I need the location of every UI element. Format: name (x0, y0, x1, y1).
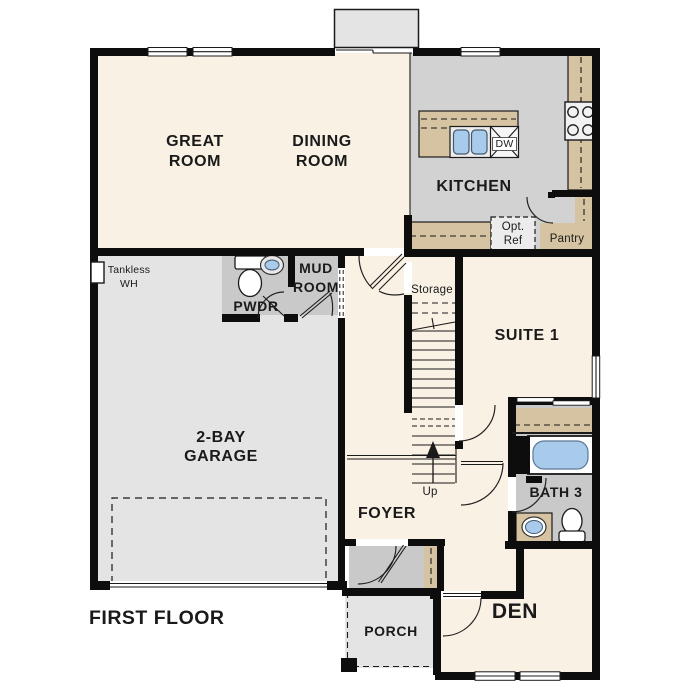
stove-icon (565, 102, 596, 140)
wall (90, 581, 110, 590)
floor-plan: GREAT ROOM DINING ROOM KITCHEN PWDR MUD … (0, 0, 687, 687)
door-hinge-post (548, 192, 555, 198)
toilet-bowl (562, 509, 582, 534)
tankless-wh-label: WH (120, 278, 138, 290)
mud-room-label: MUD (299, 260, 333, 276)
floor-plan-drawing: GREAT ROOM DINING ROOM KITCHEN PWDR MUD … (0, 0, 687, 687)
door-opening (441, 591, 481, 599)
garage-door (110, 581, 327, 590)
suite1-label: SUITE 1 (495, 327, 560, 344)
burner-icon (583, 107, 593, 117)
dining-room-label: DINING (292, 133, 352, 150)
mud-room-label: ROOM (293, 279, 339, 295)
storage-label: Storage (411, 284, 453, 296)
island-sink (450, 127, 491, 158)
den-label: DEN (492, 600, 538, 623)
tankless-wh-label: Tankless (108, 264, 150, 276)
foyer-label: FOYER (358, 505, 416, 522)
wall (526, 476, 542, 483)
wall (413, 48, 600, 56)
bath3-sink (516, 513, 552, 542)
bathtub-icon (528, 436, 593, 474)
garage-label: GARAGE (184, 448, 258, 465)
window (193, 48, 232, 57)
window (148, 48, 187, 57)
door-opening (364, 248, 404, 256)
wall (404, 295, 412, 413)
page-title: FIRST FLOOR (89, 607, 225, 629)
wall (90, 248, 364, 256)
tankless-water-heater-icon (91, 262, 104, 283)
door-opening (455, 405, 463, 441)
pantry-vestibule-floor (542, 197, 575, 223)
sink-basin-icon (472, 130, 488, 154)
toilet-bowl (239, 270, 262, 297)
wall (284, 314, 298, 322)
pwdr-label: PWDR (233, 298, 278, 314)
wall (433, 591, 441, 675)
dishwasher-label: DW (496, 138, 514, 150)
suite1-closet-shelf (512, 408, 592, 433)
fireplace-bumpout (335, 10, 419, 48)
window (592, 356, 600, 398)
up-label: Up (422, 486, 437, 498)
wall (435, 672, 600, 680)
kitchen-label: KITCHEN (436, 178, 511, 195)
wall (342, 588, 438, 596)
wall (404, 249, 600, 257)
garage-label: 2-BAY (196, 429, 246, 446)
sink-icon (261, 256, 284, 275)
door-opening (508, 477, 516, 511)
dining-room-label: ROOM (296, 153, 348, 170)
wall (552, 190, 600, 197)
wall (455, 255, 463, 405)
porch-label: PORCH (364, 623, 418, 639)
opt-ref-label: Opt. (502, 221, 525, 233)
cased-opening (338, 268, 345, 318)
burner-icon (568, 125, 578, 135)
entry-closet-floor (349, 546, 424, 589)
wall (516, 543, 524, 599)
sink-basin (265, 260, 279, 270)
sink-basin (526, 521, 543, 534)
window (520, 672, 560, 681)
great-room-label: GREAT (166, 133, 224, 150)
garage-door-opening (110, 581, 327, 590)
wall (512, 436, 530, 474)
wall (341, 658, 357, 672)
toilet-base (559, 531, 585, 542)
wall (455, 441, 463, 449)
wall (222, 314, 260, 322)
window (475, 672, 515, 681)
pantry-label: Pantry (550, 233, 584, 245)
burner-icon (568, 107, 578, 117)
burner-icon (583, 125, 593, 135)
door-opening (356, 539, 408, 546)
wall (437, 540, 444, 596)
window (461, 48, 500, 57)
wall (404, 215, 412, 255)
opt-ref-label: Ref (504, 235, 523, 247)
great-room-label: ROOM (169, 153, 221, 170)
sink-basin-icon (454, 130, 470, 154)
wall (90, 48, 98, 590)
bath3-label: BATH 3 (529, 484, 582, 500)
tub-basin (533, 441, 588, 469)
